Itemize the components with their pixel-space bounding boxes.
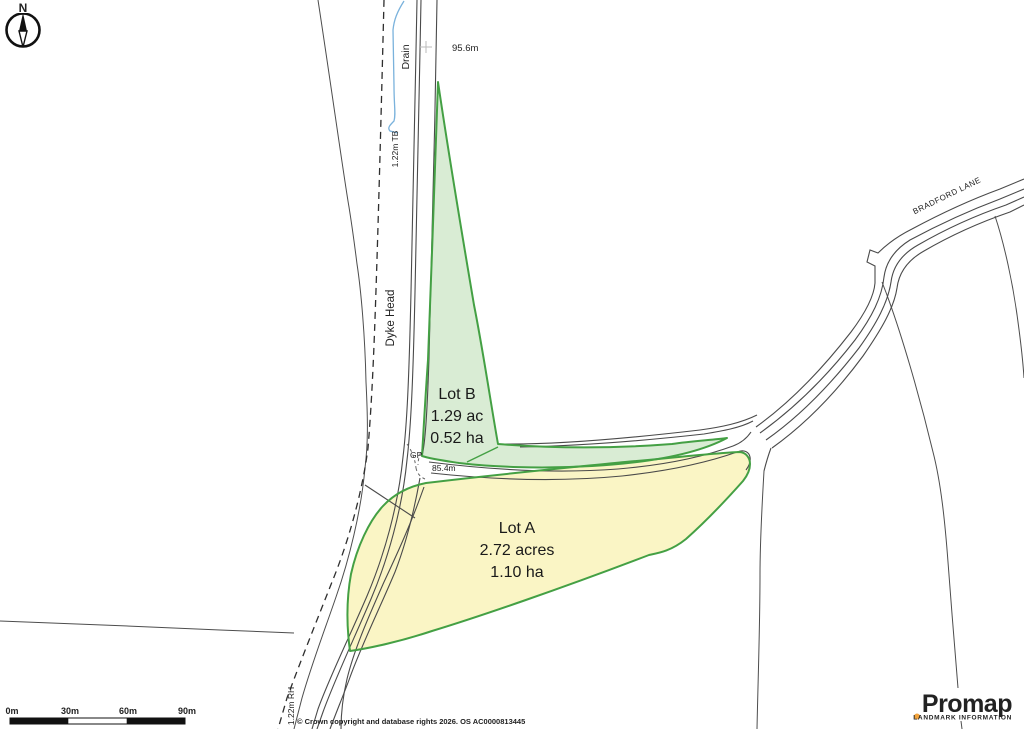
- lot-b-title: Lot B: [438, 386, 475, 403]
- compass-n-label: N: [19, 1, 28, 15]
- lot-b-acres: 1.29 ac: [431, 408, 483, 425]
- scale-bar-segment-3: [127, 718, 185, 724]
- promap-logo: Promap LANDMARK INFORMATION: [913, 690, 1012, 722]
- lot-b-hectares: 0.52 ha: [430, 430, 483, 447]
- field-boundary-junction-south: [757, 471, 764, 729]
- dyke-head-label: Dyke Head: [385, 290, 397, 347]
- field-boundary-bottom-left: [0, 621, 294, 633]
- junction-neck-line: [764, 448, 771, 471]
- scale-tick-0: 0m: [5, 706, 18, 716]
- fence-rh-label: 1.22m RH: [286, 687, 296, 725]
- compass-needle-south: [19, 31, 27, 47]
- scale-tick-30: 30m: [61, 706, 79, 716]
- scale-tick-60: 60m: [119, 706, 137, 716]
- spot-height-85-label: 85.4m: [432, 463, 456, 473]
- scale-bar-segment-1: [10, 718, 68, 724]
- bradford-lane-inner-1: [760, 189, 1024, 433]
- copyright-notice: © Crown copyright and database rights 20…: [297, 717, 525, 726]
- scale-tick-90: 90m: [178, 706, 196, 716]
- drain-label: Drain: [400, 44, 412, 69]
- north-arrow: N: [7, 0, 40, 47]
- lot-a-title: Lot A: [499, 520, 536, 537]
- lot-a-hectares: 1.10 ha: [490, 564, 543, 581]
- field-boundary-right-tail: [961, 721, 962, 729]
- compass-needle-north: [19, 13, 27, 31]
- promap-plan-page: 95.6m 85.4m GP Dyke Head Drain 1.22m TB …: [0, 0, 1024, 729]
- fence-tb-label: 1.22m TB: [390, 130, 400, 167]
- lot-a-acres: 2.72 acres: [480, 542, 555, 559]
- field-boundary-north-east: [995, 216, 1024, 378]
- map-canvas: 95.6m 85.4m GP Dyke Head Drain 1.22m TB …: [0, 0, 1024, 729]
- spot-height-95-label: 95.6m: [452, 43, 478, 54]
- gp-label: GP: [410, 450, 423, 460]
- field-boundary-right: [882, 282, 958, 688]
- landmark-tagline: LANDMARK INFORMATION: [913, 715, 1012, 722]
- scale-bar: 0m 30m 60m 90m: [5, 706, 196, 724]
- grid-cross-mark: [420, 41, 432, 53]
